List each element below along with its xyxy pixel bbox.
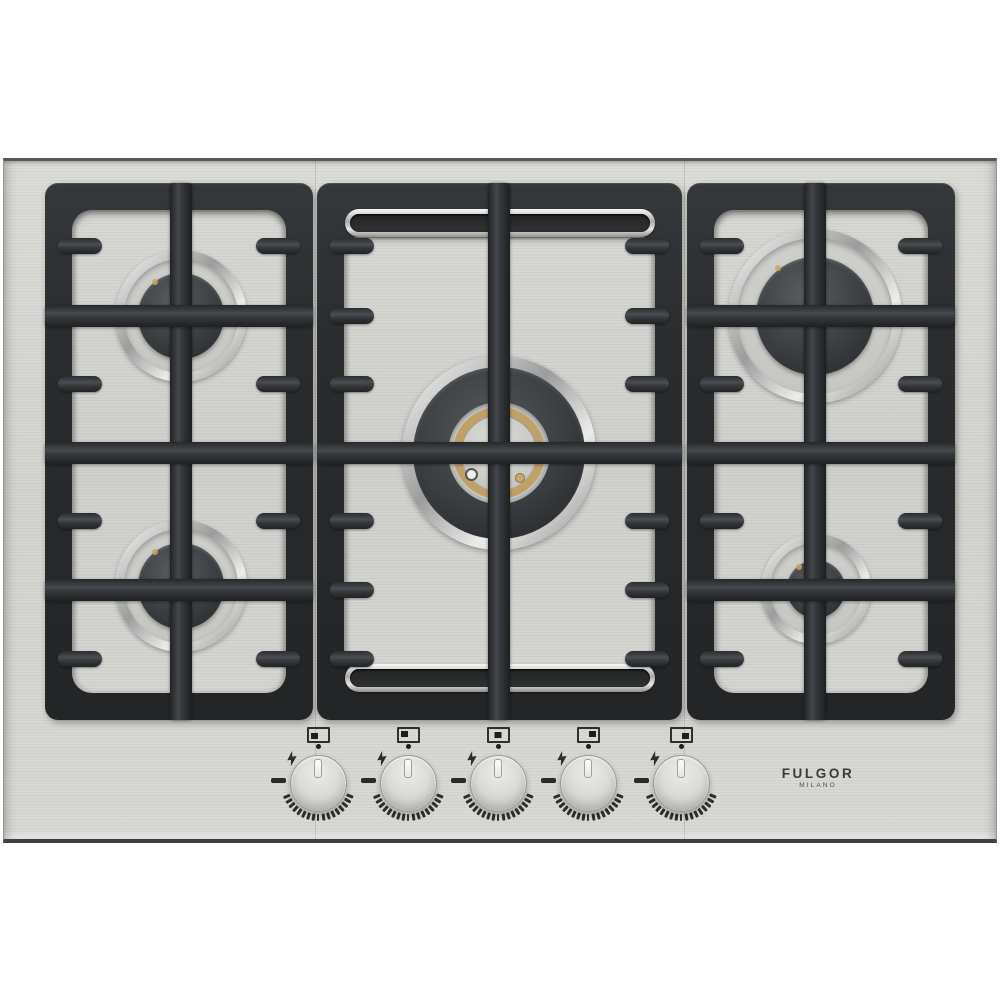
knob-index-dot [586, 744, 591, 749]
grate-bar [898, 651, 942, 667]
grate-bar [625, 308, 669, 324]
max-flame-mark [361, 778, 376, 783]
grate-bar [330, 513, 374, 529]
knob-dial[interactable] [290, 755, 347, 812]
burner-position-icon [307, 727, 330, 743]
flame-level-tick [317, 814, 320, 821]
knob-pointer [494, 759, 502, 778]
grate-bar [58, 513, 102, 529]
grate-bar [625, 582, 669, 598]
brand-subname: MILANO [772, 783, 864, 790]
grate-bar [687, 442, 955, 464]
flame-level-tick [497, 814, 500, 821]
grate-bar [700, 238, 744, 254]
max-flame-mark [541, 778, 556, 783]
grate-bar [45, 579, 313, 601]
grate-bar [898, 513, 942, 529]
knob-index-dot [316, 744, 321, 749]
grate-bar [330, 308, 374, 324]
grate-bar [687, 305, 955, 327]
max-flame-mark [634, 778, 649, 783]
grate-bar [700, 513, 744, 529]
knob-index-dot [406, 744, 411, 749]
knob-pointer [584, 759, 592, 778]
grate-bar [45, 305, 313, 327]
max-flame-mark [451, 778, 466, 783]
grate-bar [700, 376, 744, 392]
grate-bar [330, 651, 374, 667]
grate-bar [330, 582, 374, 598]
burner-position-icon [670, 727, 693, 743]
brand-logo: FULGOR MILANO [772, 767, 864, 789]
grate-bar [58, 238, 102, 254]
max-flame-mark [271, 778, 286, 783]
grate-bar [256, 513, 300, 529]
knob-index-dot [496, 744, 501, 749]
flame-level-tick [587, 814, 590, 821]
grate-bar [330, 238, 374, 254]
grate-bar [58, 651, 102, 667]
grate-bar [898, 376, 942, 392]
grate-bar [898, 238, 942, 254]
grate-bar [687, 579, 955, 601]
knob-pointer [677, 759, 685, 778]
flame-level-tick [407, 814, 410, 821]
burner-position-icon [397, 727, 420, 743]
igniter-electrode [465, 468, 478, 481]
thermocouple [515, 473, 525, 483]
grate-bar [625, 513, 669, 529]
grate-bar [256, 651, 300, 667]
grate-bar [45, 442, 313, 464]
knob-dial[interactable] [380, 755, 437, 812]
knob-index-dot [679, 744, 684, 749]
grate-bar [330, 376, 374, 392]
knob-pointer [314, 759, 322, 778]
brand-name: FULGOR [772, 767, 864, 781]
grate-bar [58, 376, 102, 392]
burner-position-icon [577, 727, 600, 743]
burner-position-icon [487, 727, 510, 743]
grate-bar [256, 376, 300, 392]
grate-bar [700, 651, 744, 667]
knob-pointer [404, 759, 412, 778]
knob-dial[interactable] [470, 755, 527, 812]
grate-bar [625, 238, 669, 254]
cooktop-product-image: FULGOR MILANO [0, 0, 1000, 1000]
flame-level-tick [680, 814, 683, 821]
grate-bar [625, 651, 669, 667]
grate-bar [625, 376, 669, 392]
grate-bar [256, 238, 300, 254]
grate-bar [317, 442, 682, 464]
knob-dial[interactable] [560, 755, 617, 812]
knob-dial[interactable] [653, 755, 710, 812]
